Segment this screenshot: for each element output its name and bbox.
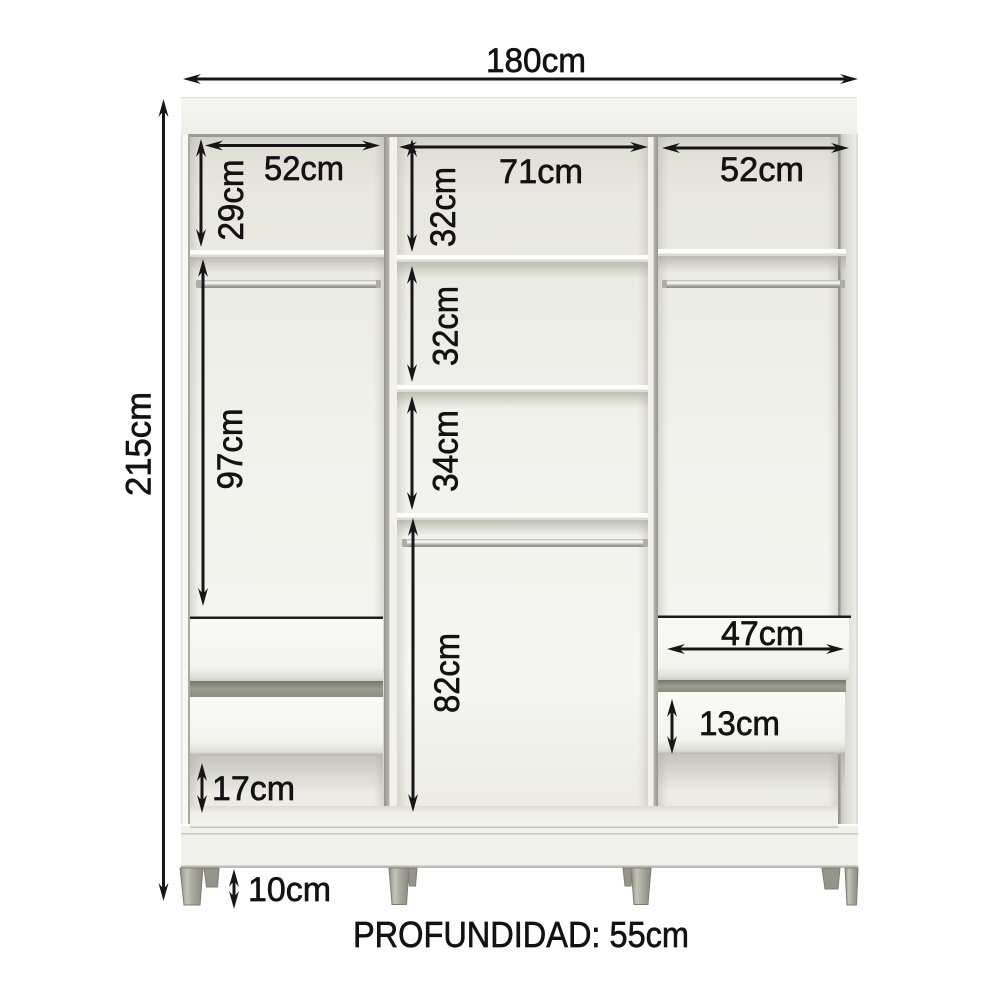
svg-text:32cm: 32cm bbox=[427, 286, 466, 366]
svg-text:32cm: 32cm bbox=[424, 167, 463, 247]
svg-text:17cm: 17cm bbox=[212, 770, 295, 808]
svg-text:52cm: 52cm bbox=[720, 151, 804, 189]
svg-text:34cm: 34cm bbox=[427, 410, 466, 492]
svg-text:29cm: 29cm bbox=[212, 160, 251, 241]
svg-text:PROFUNDIDAD: 55cm: PROFUNDIDAD: 55cm bbox=[353, 914, 689, 955]
svg-text:71cm: 71cm bbox=[499, 153, 583, 191]
svg-text:180cm: 180cm bbox=[486, 42, 586, 80]
svg-text:82cm: 82cm bbox=[428, 633, 467, 713]
svg-text:13cm: 13cm bbox=[699, 705, 780, 743]
svg-text:97cm: 97cm bbox=[211, 409, 250, 490]
svg-text:10cm: 10cm bbox=[248, 871, 331, 909]
svg-text:215cm: 215cm bbox=[120, 392, 159, 496]
svg-text:52cm: 52cm bbox=[264, 150, 344, 188]
svg-text:47cm: 47cm bbox=[721, 615, 804, 653]
